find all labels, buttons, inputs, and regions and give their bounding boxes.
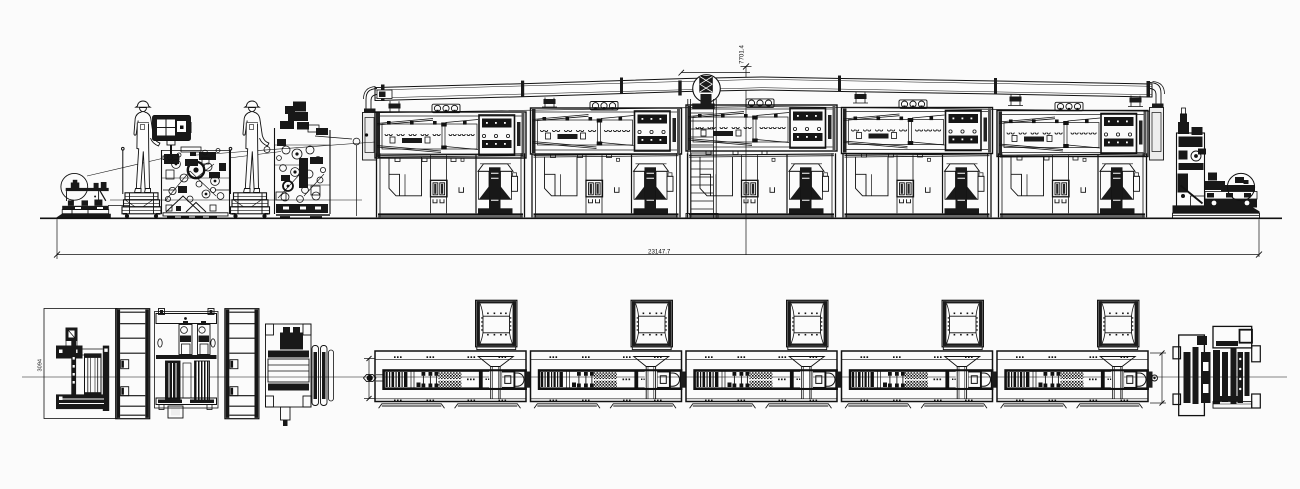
svg-text:7701.4: 7701.4 [739,45,746,64]
svg-text:3094: 3094 [38,359,44,371]
svg-text:23147.7: 23147.7 [648,249,671,256]
